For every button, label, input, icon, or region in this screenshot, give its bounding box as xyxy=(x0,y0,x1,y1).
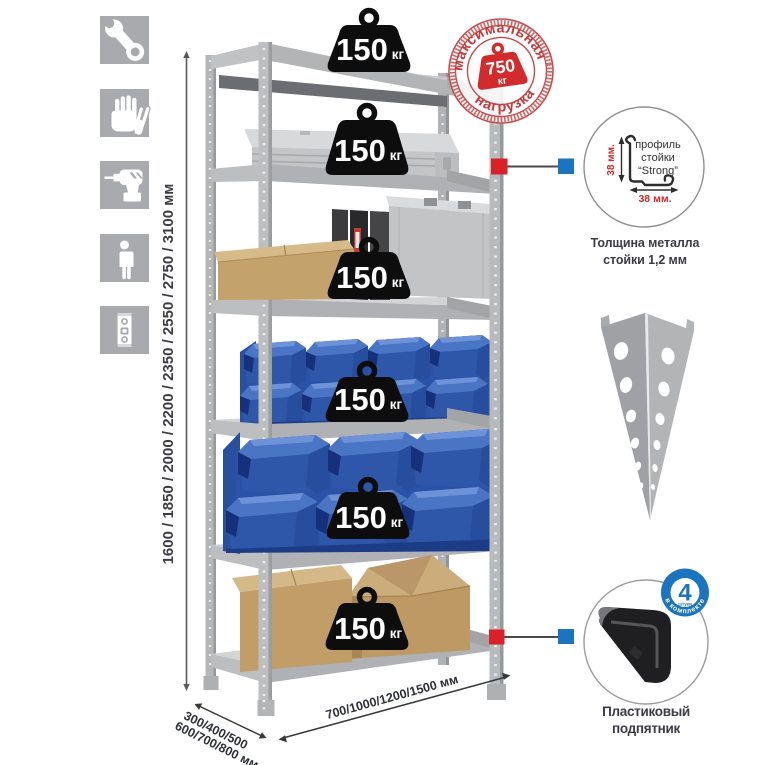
svg-text:кг: кг xyxy=(391,515,404,530)
svg-text:150: 150 xyxy=(335,500,387,535)
svg-text:кг: кг xyxy=(497,75,508,87)
svg-text:150: 150 xyxy=(334,382,386,417)
svg-text:Толщина металла: Толщина металла xyxy=(591,236,701,250)
svg-text:кг: кг xyxy=(392,275,405,290)
svg-text:150: 150 xyxy=(336,260,388,295)
svg-text:“Strong”: “Strong” xyxy=(638,165,678,177)
svg-text:150: 150 xyxy=(334,133,386,168)
svg-text:подпятник: подпятник xyxy=(612,721,680,736)
svg-text:38 мм.: 38 мм. xyxy=(638,193,671,205)
svg-text:профиль: профиль xyxy=(635,139,681,151)
svg-text:кг: кг xyxy=(390,148,403,163)
svg-text:150: 150 xyxy=(334,611,386,646)
svg-text:стойки: стойки xyxy=(641,152,675,164)
svg-text:38 мм.: 38 мм. xyxy=(606,144,617,176)
svg-text:1600 / 1850 / 2000 / 2200 / 23: 1600 / 1850 / 2000 / 2200 / 2350 / 2550 … xyxy=(160,184,177,565)
svg-text:кг: кг xyxy=(392,47,405,62)
svg-text:кг: кг xyxy=(390,397,403,412)
svg-text:Пластиковый: Пластиковый xyxy=(602,704,690,719)
svg-text:штуки: штуки xyxy=(678,602,692,607)
svg-text:стойки 1,2 мм: стойки 1,2 мм xyxy=(603,253,687,267)
svg-text:кг: кг xyxy=(390,626,403,641)
svg-text:150: 150 xyxy=(336,32,388,67)
